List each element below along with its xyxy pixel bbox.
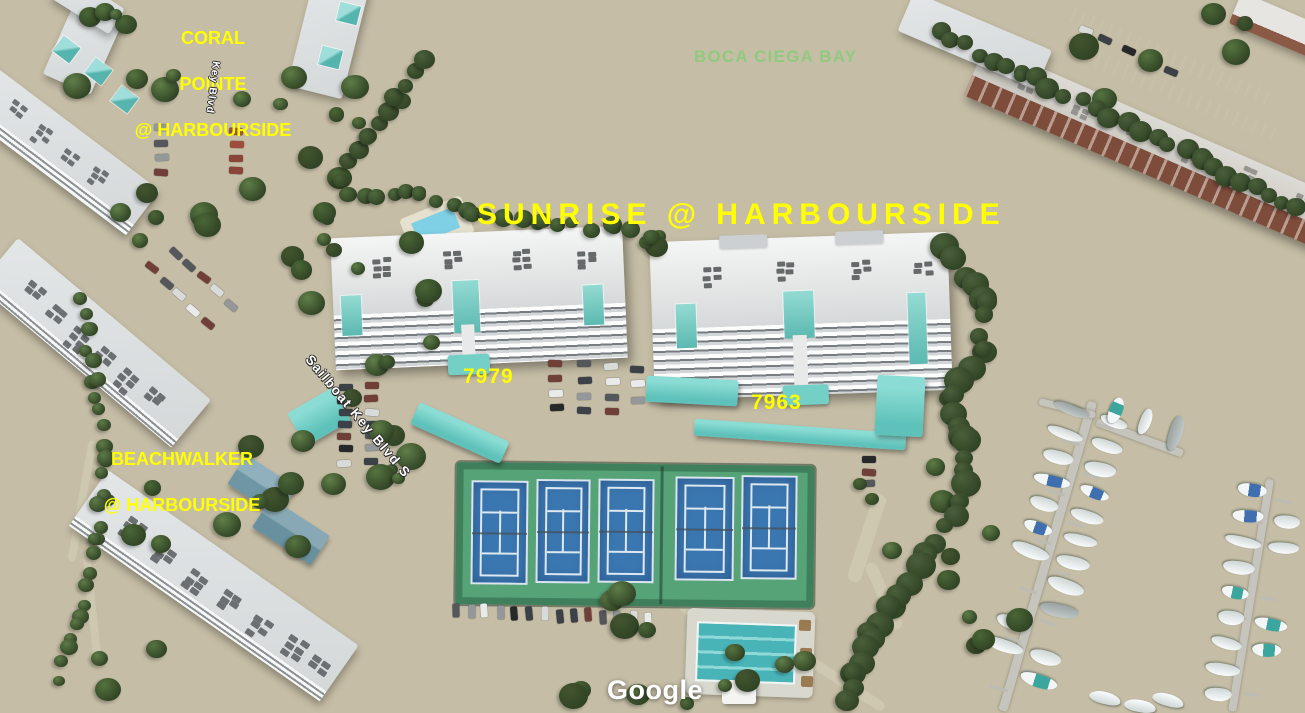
tree [952, 427, 981, 453]
car [548, 360, 562, 367]
ac-unit [257, 627, 268, 637]
ac-unit [914, 262, 922, 267]
label-line: @ HARBOURSIDE [104, 495, 261, 515]
building-7979 [330, 226, 627, 371]
car [365, 382, 379, 389]
roof-structure [719, 234, 767, 249]
car [605, 408, 619, 415]
car [862, 456, 876, 463]
tree [638, 622, 656, 638]
tree [239, 177, 266, 201]
ac-unit [776, 269, 784, 274]
tree [608, 581, 636, 606]
tree [291, 430, 315, 452]
tree [412, 187, 427, 200]
ac-unit [704, 283, 712, 288]
tree [943, 385, 963, 403]
car [605, 393, 619, 400]
ac-unit [914, 269, 922, 274]
car [549, 390, 563, 397]
tree [718, 679, 732, 692]
car [480, 603, 488, 617]
ac-unit [102, 358, 112, 368]
label-line: @ HARBOURSIDE [135, 120, 292, 140]
label-coral-pointe: CORAL POINTE @ HARBOURSIDE [112, 4, 294, 165]
tree [940, 246, 966, 269]
ac-unit [42, 136, 51, 144]
car [497, 605, 504, 619]
label-beachwalker: BEACHWALKER @ HARBOURSIDE [72, 425, 272, 540]
ac-unit [786, 263, 794, 268]
ac-unit [513, 251, 521, 256]
tree [793, 651, 816, 671]
tennis-court [472, 482, 526, 583]
tree [1222, 39, 1250, 64]
car [599, 610, 607, 624]
tree [78, 578, 94, 592]
tennis-court [677, 478, 733, 579]
tennis-court [538, 481, 589, 582]
tree [997, 58, 1015, 74]
ac-unit [853, 269, 861, 274]
carport-canopy [645, 376, 738, 407]
car [542, 607, 549, 621]
car [631, 380, 645, 388]
car [154, 169, 168, 177]
ac-unit [299, 639, 310, 649]
ac-unit [704, 267, 712, 272]
ac-unit [851, 262, 859, 267]
label-line: CORAL [181, 28, 245, 48]
clubhouse-canopy [874, 375, 925, 437]
ac-unit [67, 159, 76, 167]
tree [1006, 608, 1033, 632]
ac-unit [863, 267, 871, 272]
label-boca-ciega-bay: BOCA CIEGA BAY [694, 47, 857, 67]
label-line: BEACHWALKER [111, 449, 253, 469]
ac-unit [523, 263, 531, 268]
tree [194, 213, 221, 237]
ac-unit [455, 257, 463, 262]
tree [91, 651, 108, 666]
label-sunrise-harbourside: SUNRISE @ HARBOURSIDE [477, 197, 1006, 233]
patio-pad [801, 676, 813, 687]
tree [53, 676, 65, 687]
ac-unit [108, 351, 118, 361]
ac-unit [862, 259, 870, 264]
car [452, 604, 459, 618]
tree [298, 291, 325, 315]
ac-unit [383, 272, 391, 277]
tree [291, 260, 313, 279]
tree [54, 655, 67, 667]
tree [982, 525, 1000, 542]
tree [317, 233, 331, 246]
ac-unit [20, 105, 29, 113]
tree [73, 292, 87, 305]
tree [1138, 49, 1163, 71]
google-watermark[interactable]: Google [607, 674, 703, 706]
building-7963 [649, 232, 952, 400]
ac-unit [522, 249, 530, 254]
tree [136, 183, 159, 203]
tree [972, 629, 995, 649]
tree [81, 322, 97, 337]
car [337, 459, 351, 467]
tennis-courts-pad [455, 462, 814, 608]
tree [63, 73, 92, 99]
tennis-court [600, 481, 653, 582]
ac-unit [72, 152, 81, 160]
tree [86, 546, 101, 560]
tree [937, 570, 960, 590]
tree [941, 548, 960, 565]
tree [368, 189, 386, 205]
tree [85, 353, 101, 368]
car [337, 433, 351, 440]
ac-unit [713, 266, 721, 271]
tree [975, 306, 993, 322]
ac-unit [924, 261, 932, 266]
tree [926, 458, 945, 475]
car [550, 404, 564, 412]
ac-unit [714, 275, 722, 280]
ac-unit [382, 265, 390, 270]
tree [1286, 198, 1305, 215]
ac-unit [443, 251, 451, 256]
tree [313, 202, 337, 223]
ac-unit [264, 619, 275, 629]
tree [398, 79, 414, 93]
tree [380, 355, 395, 369]
car [577, 407, 591, 415]
ac-unit [97, 176, 106, 184]
ac-unit [778, 276, 786, 281]
ac-unit [374, 266, 382, 271]
car [606, 378, 620, 385]
stair-tower [583, 285, 605, 325]
tree [865, 493, 879, 505]
tree [1201, 3, 1226, 26]
tree [90, 372, 106, 387]
ac-unit [444, 259, 452, 264]
car [584, 607, 592, 621]
tree [60, 639, 78, 655]
patio-pad [799, 620, 811, 631]
ac-unit [785, 270, 793, 275]
car [577, 360, 591, 367]
tree [148, 210, 164, 225]
ac-unit [29, 135, 38, 143]
ac-unit [190, 568, 201, 578]
tree [1069, 33, 1099, 60]
ac-unit [925, 271, 933, 276]
ac-unit [577, 251, 585, 256]
ac-unit [45, 127, 54, 135]
car [555, 609, 563, 624]
tree [610, 613, 639, 639]
tree [278, 472, 304, 495]
car [862, 468, 876, 476]
ac-unit [851, 275, 859, 280]
label-building-7979: 7979 [463, 364, 514, 389]
ac-unit [14, 111, 23, 119]
stair-tower [907, 293, 927, 365]
tree [341, 75, 369, 100]
tree [351, 262, 365, 275]
tree [285, 535, 311, 558]
car [364, 395, 378, 403]
car [629, 366, 643, 374]
stair-tower [676, 304, 698, 349]
ac-unit [372, 260, 380, 265]
tree [329, 107, 345, 121]
stair-tower [341, 295, 363, 335]
car [229, 167, 243, 175]
car [631, 397, 645, 404]
tennis-court [743, 477, 796, 578]
ac-unit [513, 257, 521, 262]
ac-unit [522, 256, 530, 261]
ac-unit [444, 265, 452, 270]
ac-unit [588, 257, 596, 262]
ac-unit [703, 276, 711, 281]
tree [146, 640, 166, 658]
ac-unit [384, 256, 392, 261]
court-fence [659, 466, 663, 604]
tree [298, 146, 323, 168]
car [577, 393, 591, 400]
tree [951, 470, 981, 497]
car [339, 445, 353, 452]
tree [414, 50, 435, 69]
tree [326, 243, 342, 257]
ac-unit [101, 169, 110, 177]
ac-unit [777, 261, 785, 266]
tree [92, 403, 105, 414]
tree [132, 233, 148, 248]
ac-unit [453, 251, 461, 256]
map-canvas[interactable]: CORAL POINTE @ HARBOURSIDE BOCA CIEGA BA… [0, 0, 1305, 713]
car [547, 375, 561, 382]
ac-unit [514, 265, 522, 270]
label-building-7963: 7963 [751, 390, 802, 415]
tree [88, 392, 101, 404]
ac-unit [577, 265, 585, 270]
ac-unit [373, 273, 381, 278]
tree [339, 187, 357, 203]
car [604, 363, 618, 371]
car [468, 604, 475, 618]
stair-tower [783, 290, 815, 338]
tree [70, 618, 84, 630]
tree [352, 117, 366, 129]
